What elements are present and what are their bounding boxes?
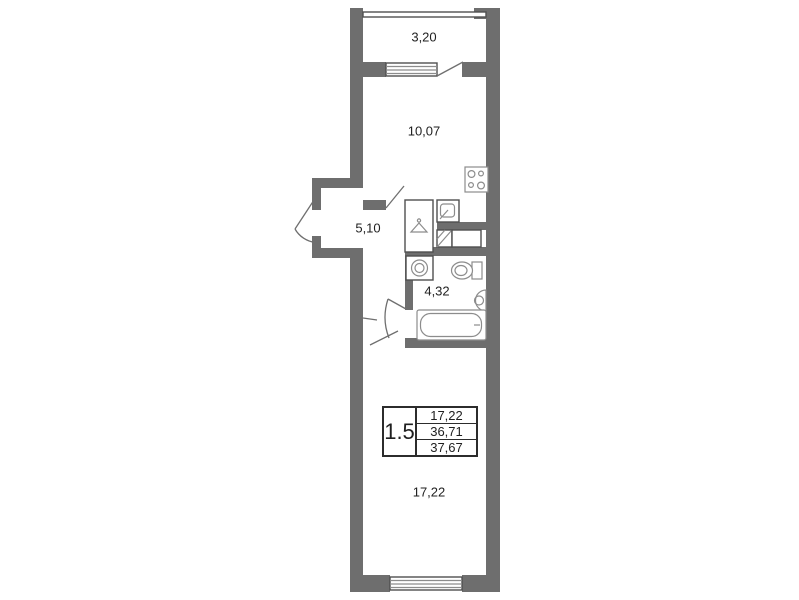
room-label-balcony: 3,20 — [411, 30, 436, 45]
wall-vestibule-top — [312, 178, 363, 188]
room-label-hall: 5,10 — [355, 221, 380, 236]
wall-bottom-left — [350, 575, 390, 592]
room-window — [390, 577, 462, 590]
floor-plan-drawing — [0, 0, 799, 600]
stove-icon — [465, 167, 488, 192]
area-value: 36,71 — [417, 424, 476, 440]
total-area-value: 37,67 — [417, 440, 476, 455]
kitchen-door-leaf — [386, 186, 404, 208]
room-door-leaf — [370, 331, 398, 345]
living-area-value: 17,22 — [417, 408, 476, 424]
wall-bottom-right — [462, 575, 500, 592]
niche-box — [452, 230, 481, 247]
washing-machine-icon — [406, 256, 433, 280]
rooms-count-cell: 1.5 — [384, 408, 417, 455]
wall-hall-kitchen — [363, 200, 386, 210]
room-label-bathroom: 4,32 — [424, 284, 449, 299]
wall-left-top — [350, 8, 363, 188]
bathtub-icon — [417, 310, 486, 340]
wardrobe-icon — [405, 200, 433, 252]
wall-vestibule-pillar-top — [312, 188, 321, 210]
walls — [312, 8, 500, 592]
kitchen-sink-icon — [437, 200, 459, 222]
room-label-room: 17,22 — [413, 485, 446, 500]
wall-right — [486, 8, 500, 592]
wall-kitchen-bottom — [437, 222, 486, 230]
floor-plan-canvas: 3,20 10,07 5,10 4,32 17,22 1.5 17,22 36,… — [0, 0, 799, 600]
wall-left-bottom — [350, 248, 363, 592]
kitchen-window — [386, 63, 437, 76]
wall-balcony-right-block — [462, 62, 486, 77]
room-door-jamb — [363, 318, 377, 320]
ventilation-shaft — [437, 230, 481, 247]
wall-vestibule-bottom — [312, 248, 363, 258]
wall-balcony-left-block — [363, 62, 386, 77]
room-label-kitchen: 10,07 — [408, 124, 441, 139]
apartment-info-table: 1.5 17,22 36,71 37,67 — [382, 406, 478, 457]
balcony-glazing — [363, 12, 486, 17]
wash-basin-icon — [475, 290, 487, 311]
areas-column: 17,22 36,71 37,67 — [417, 408, 476, 455]
balcony-door-leaf — [437, 62, 463, 76]
windows — [363, 12, 486, 590]
toilet-icon — [452, 262, 483, 279]
